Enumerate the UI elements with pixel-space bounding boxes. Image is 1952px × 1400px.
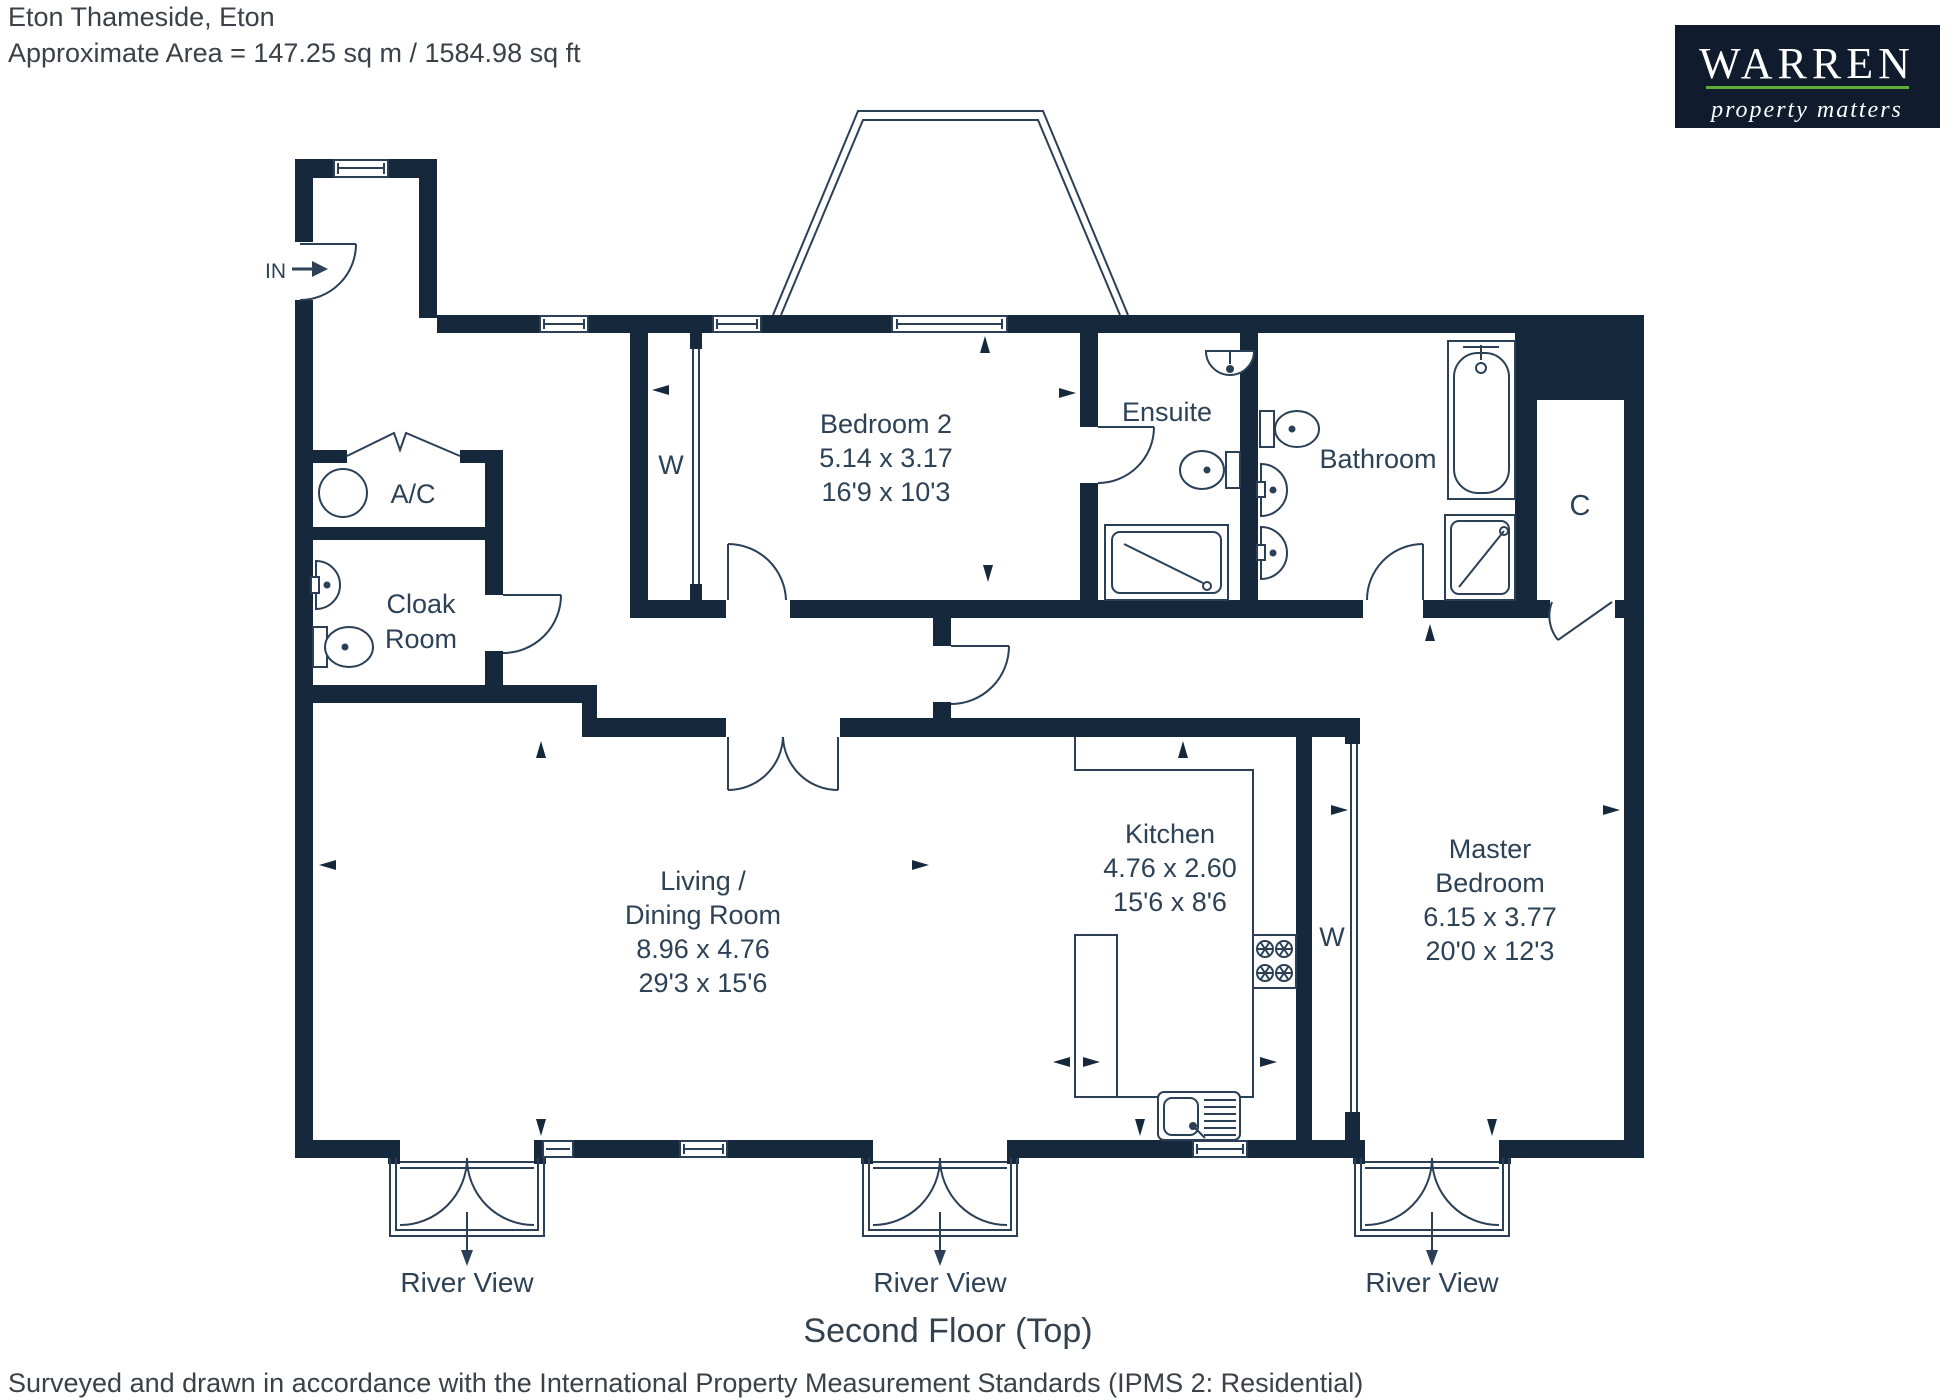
hob-icon [1253,935,1296,988]
measure-arrow [1053,1057,1070,1067]
walls [295,159,1644,1164]
floorplan-page: Eton Thameside, Eton Approximate Area = … [0,0,1952,1400]
room-label-master-1: Master [1449,834,1532,864]
wall-segment [1515,333,1537,618]
measure-arrow [1260,1057,1277,1067]
room-label-ensuite: Ensuite [1122,397,1212,427]
arrow-down-icon [461,1250,473,1266]
wall-segment [1520,315,1644,400]
wall-segment [1240,333,1258,600]
window [334,160,388,177]
shower-icon [1445,515,1515,600]
cloakroom-door [503,595,561,653]
bedroom2-door [728,544,786,600]
room-dims-m-living: 8.96 x 4.76 [636,934,770,964]
floorplan-drawing: Eton Thameside, Eton Approximate Area = … [0,0,1952,1400]
wall-segment [1080,600,1363,618]
hall-door [951,646,1009,704]
room-dims-ft-master: 20'0 x 12'3 [1426,936,1555,966]
room-label-master-2: Bedroom [1435,868,1545,898]
wall-segment [1007,1140,1365,1158]
measure-arrow [536,1119,546,1136]
wall-segment [582,703,597,737]
measure-arrow [1059,388,1076,398]
sink-icon [1257,527,1287,579]
wardrobe-label-master: W [1319,922,1345,952]
closet-door [1549,602,1612,640]
wall-segment [295,178,313,242]
river-view-recess [863,1158,1017,1254]
wall-segment [933,618,951,646]
room-label-cloak-2: Room [385,624,457,654]
toilet-icon [313,627,373,667]
wall-segment [790,600,1080,618]
wall-segment [630,333,648,600]
wall-segment [419,178,437,318]
measure-arrow [983,565,993,582]
sink-icon [1257,464,1287,516]
window [680,1141,727,1157]
entrance-label: IN [265,260,286,283]
approx-area-label: Approximate Area = 147.25 sq m / 1584.98… [8,38,581,68]
arrow-down-icon [934,1250,946,1266]
window [892,316,1007,332]
river-view-recess [390,1158,544,1254]
measure-arrow [1331,805,1348,815]
measure-arrow [1135,1119,1145,1136]
windows [334,160,1247,1157]
room-dims-ft-bedroom2: 16'9 x 10'3 [822,477,951,507]
measure-arrow [912,860,929,870]
river-view-label-2: River View [873,1267,1007,1298]
wardrobe-label-bedroom2: W [658,450,684,480]
wall-segment [1080,483,1098,600]
arrow-right-icon [312,261,328,277]
toilet-icon [1180,451,1240,489]
logo-brand-text: WARREN [1699,39,1915,88]
wall-segment [460,450,503,463]
wall-segment [1080,333,1098,427]
measure-arrow [652,385,669,395]
bathtub-icon [1448,341,1515,499]
bay-window [773,111,1128,315]
window [713,316,761,332]
river-view-label-3: River View [1365,1267,1499,1298]
room-dims-m-bedroom2: 5.14 x 3.17 [819,443,953,473]
river-view-arrowheads [461,1250,1438,1266]
wall-segment [313,527,485,540]
wall-segment [597,718,726,737]
room-label-bedroom2: Bedroom 2 [820,409,952,439]
room-dims-m-master: 6.15 x 3.77 [1423,902,1557,932]
room-label-living-2: Dining Room [625,900,781,930]
agency-logo: WARREN property matters [1675,25,1940,128]
living-double-doors [728,737,838,790]
wall-segment [1345,1112,1360,1140]
logo-tagline-text: property matters [1709,97,1903,123]
measure-arrow [1487,1119,1497,1136]
wall-segment [1499,1140,1644,1158]
kitchen-sink-icon [1158,1092,1240,1140]
measure-arrow [980,336,990,353]
measure-arrow [1603,805,1620,815]
wall-segment [1615,600,1644,618]
page-title: Eton Thameside, Eton [8,2,275,32]
wall-segment [295,685,597,703]
entrance-door [300,244,356,300]
room-label-cloak-1: Cloak [386,589,456,619]
window [543,1141,573,1157]
wall-segment [485,450,503,595]
wall-segment [295,1140,400,1158]
wall-segment [1345,718,1360,744]
arrow-down-icon [1426,1250,1438,1266]
wall-segment [1624,400,1644,618]
room-label-ac: A/C [390,479,435,509]
floor-title: Second Floor (Top) [803,1312,1092,1350]
river-view-recesses [390,1158,1509,1266]
kitchen-counter [1075,737,1253,1097]
wall-segment [690,333,702,349]
shower-icon [1105,525,1228,600]
wall-segment [295,300,313,1158]
room-label-bathroom: Bathroom [1319,444,1436,474]
sink-icon [311,561,340,609]
wall-segment [630,600,726,618]
bifold-door [347,433,460,456]
wall-segment [313,450,347,463]
entrance-marker: IN [265,260,328,283]
wall-segment [840,718,1358,737]
bathroom-door [1367,544,1423,600]
room-label-kitchen: Kitchen [1125,819,1215,849]
ac-unit-icon [319,469,367,517]
wall-segment [1296,737,1312,1140]
logo-accent-line [1706,86,1909,89]
toilet-icon [1260,411,1319,447]
room-dims-m-kitchen: 4.76 x 2.60 [1103,853,1237,883]
wall-segment [1423,600,1550,618]
footer-note: Surveyed and drawn in accordance with th… [8,1368,1363,1398]
river-view-recess [1355,1158,1509,1254]
room-label-living-1: Living / [660,866,746,896]
river-view-label-1: River View [400,1267,534,1298]
window [540,316,588,332]
room-dims-ft-living: 29'3 x 15'6 [639,968,768,998]
room-dims-ft-kitchen: 15'6 x 8'6 [1113,887,1227,917]
measure-arrow [319,860,336,870]
measure-arrow [1178,741,1188,758]
measure-arrow [536,741,546,758]
wall-segment [690,584,702,600]
room-label-closet: C [1570,490,1591,522]
wall-segment [1624,618,1644,1158]
measure-arrow [1425,624,1435,641]
window [1193,1141,1247,1157]
measure-arrow [1083,1057,1100,1067]
ensuite-door [1098,427,1154,483]
